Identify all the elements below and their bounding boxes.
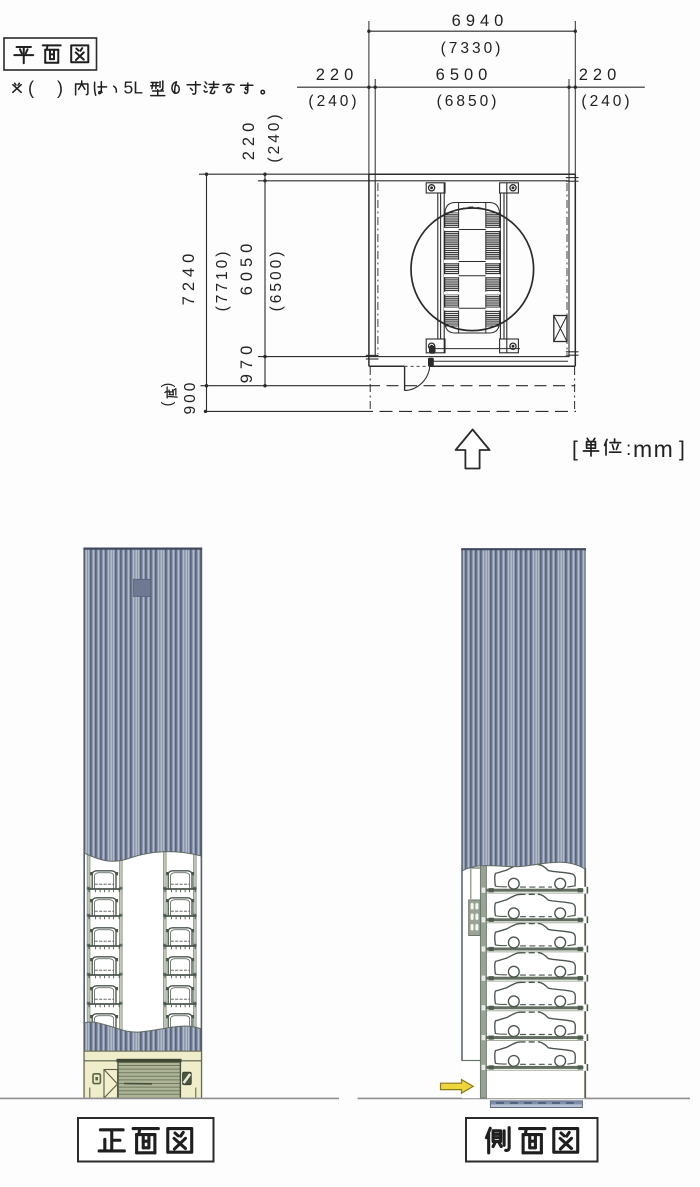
svg-text:220: 220 (316, 66, 359, 84)
svg-text:(240): (240) (266, 111, 283, 162)
svg-text:220: 220 (240, 118, 258, 161)
svg-text:7240: 7240 (180, 249, 198, 306)
svg-text:]: ] (679, 438, 685, 461)
svg-text:(6850): (6850) (437, 93, 500, 110)
svg-text:(240): (240) (581, 93, 632, 110)
svg-text:220: 220 (579, 66, 622, 84)
svg-text:(7330): (7330) (441, 40, 504, 57)
svg-text:6050: 6050 (238, 239, 256, 296)
svg-text:(6500): (6500) (268, 249, 285, 312)
svg-text:(7710): (7710) (214, 249, 231, 312)
svg-text:6500: 6500 (436, 66, 493, 84)
svg-text:): ) (57, 78, 63, 98)
svg-text::: : (626, 439, 631, 460)
svg-text:(: ( (28, 78, 34, 98)
svg-text:[: [ (572, 438, 578, 461)
svg-text:mm: mm (633, 436, 674, 462)
svg-text:900: 900 (182, 380, 199, 415)
svg-text:5L: 5L (124, 78, 144, 98)
svg-text:(240): (240) (308, 93, 359, 110)
svg-text:6940: 6940 (452, 12, 509, 30)
svg-text:970: 970 (238, 341, 256, 384)
